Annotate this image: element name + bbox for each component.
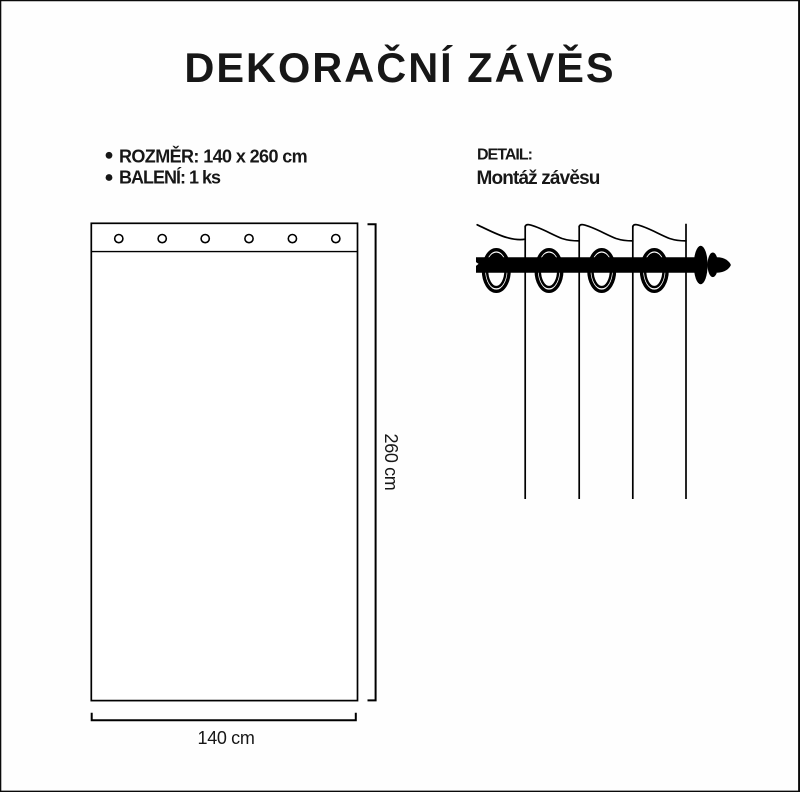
svg-text:DETAIL:: DETAIL: — [477, 147, 532, 164]
svg-text:Montáž závěsu: Montáž závěsu — [477, 168, 600, 189]
svg-text:260 cm: 260 cm — [381, 434, 401, 491]
svg-text:140 cm: 140 cm — [198, 728, 255, 748]
svg-text:ROZMĚR: 140 x 260 cm: ROZMĚR: 140 x 260 cm — [119, 146, 307, 167]
svg-text:DEKORAČNÍ ZÁVĚS: DEKORAČNÍ ZÁVĚS — [184, 44, 615, 91]
svg-text:BALENÍ: 1 ks: BALENÍ: 1 ks — [119, 167, 221, 188]
